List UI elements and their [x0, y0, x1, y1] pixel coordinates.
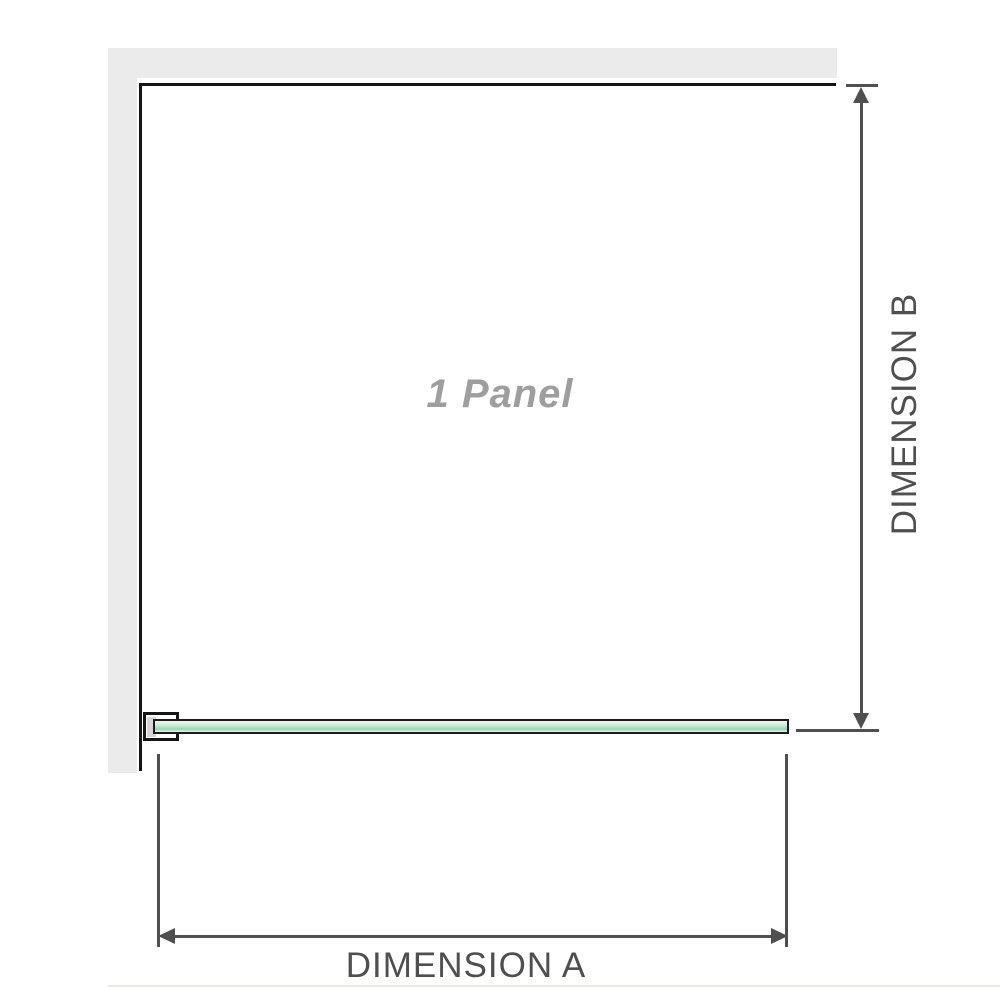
image-bottom-divider [108, 985, 1000, 987]
glass-panel [153, 719, 789, 734]
dimension-b-label: DIMENSION B [885, 264, 925, 564]
dimension-a-right-extension-line [785, 754, 788, 947]
dimension-a-label: DIMENSION A [266, 948, 666, 984]
wall-top-inner-edge [140, 83, 836, 86]
wall-left [108, 48, 137, 773]
wall-left-inner-edge [139, 83, 142, 771]
wall-top [108, 48, 837, 78]
dimension-b-line [860, 98, 863, 718]
arrow-down-icon [853, 713, 869, 729]
panel-count-label: 1 Panel [300, 372, 700, 417]
dimension-a-line [166, 935, 780, 938]
arrow-right-icon [771, 928, 788, 944]
dimension-a-left-extension-line [157, 754, 160, 947]
shower-screen-diagram: 1 Panel DIMENSION B DIMENSION A [0, 0, 1000, 1000]
dimension-b-bottom-tick [796, 729, 879, 732]
